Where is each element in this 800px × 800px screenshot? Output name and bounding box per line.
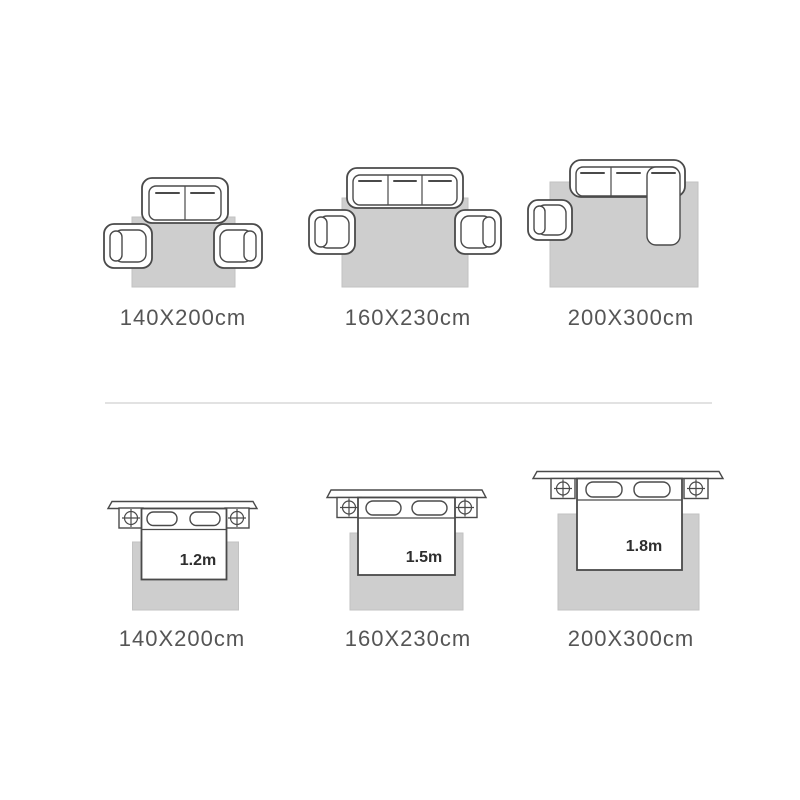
rug-size-label: 140X200cm [120,305,246,330]
pillow [412,501,447,515]
armchair-back [534,206,545,234]
nightstand-right [225,508,249,528]
armchair-right [455,210,501,254]
armchair-right [214,224,262,268]
size-guide-canvas: 140X200cm 16 [0,0,800,800]
armchair-back [110,231,122,261]
sofa-diagram-200x300: 200X300cm [528,160,698,330]
bed-width-label: 1.8m [626,538,662,555]
nightstand-right [684,479,708,499]
rug-size-label: 200X300cm [568,626,694,651]
sofa-chaise [647,167,680,245]
bed-1-2m: 1.2m [142,509,227,580]
two-seat-sofa [142,178,228,223]
pillow [634,482,670,497]
rug-size-label: 160X230cm [345,626,471,651]
sofa-seat-area [353,175,457,205]
armchair-back [244,231,256,261]
bed-diagram-140x200: 1.2m 140X200cm [108,502,257,652]
bed-diagram-160x230: 1.5m 160X230cm [327,490,486,651]
armchair-back [483,217,495,247]
nightstand-left [551,479,575,499]
bed-diagram-200x300: 1.8m 200X300cm [533,472,723,652]
sofa-diagram-140x200: 140X200cm [104,178,262,330]
rug-160x230 [342,198,468,287]
rug-size-label: 160X230cm [345,305,471,330]
rug-size-label: 140X200cm [119,626,245,651]
sofa-diagram-160x230: 160X230cm [309,168,501,330]
bed-width-label: 1.5m [406,549,442,566]
pillow [366,501,401,515]
rug-size-guide: 140X200cm 16 [0,0,800,800]
rug-size-label: 200X300cm [568,305,694,330]
pillow [586,482,622,497]
armchair-left [309,210,355,254]
headboard [533,472,723,479]
bed-1-8m: 1.8m [577,479,682,571]
headboard [327,490,486,498]
nightstand-left [119,508,143,528]
pillow [147,512,177,526]
bed-width-label: 1.2m [180,552,216,569]
nightstand-right [453,498,477,518]
armchair-left [528,200,572,240]
three-seat-sofa [347,168,463,208]
bed-1-5m: 1.5m [358,498,455,576]
armchair-left [104,224,152,268]
pillow [190,512,220,526]
armchair-back [315,217,327,247]
